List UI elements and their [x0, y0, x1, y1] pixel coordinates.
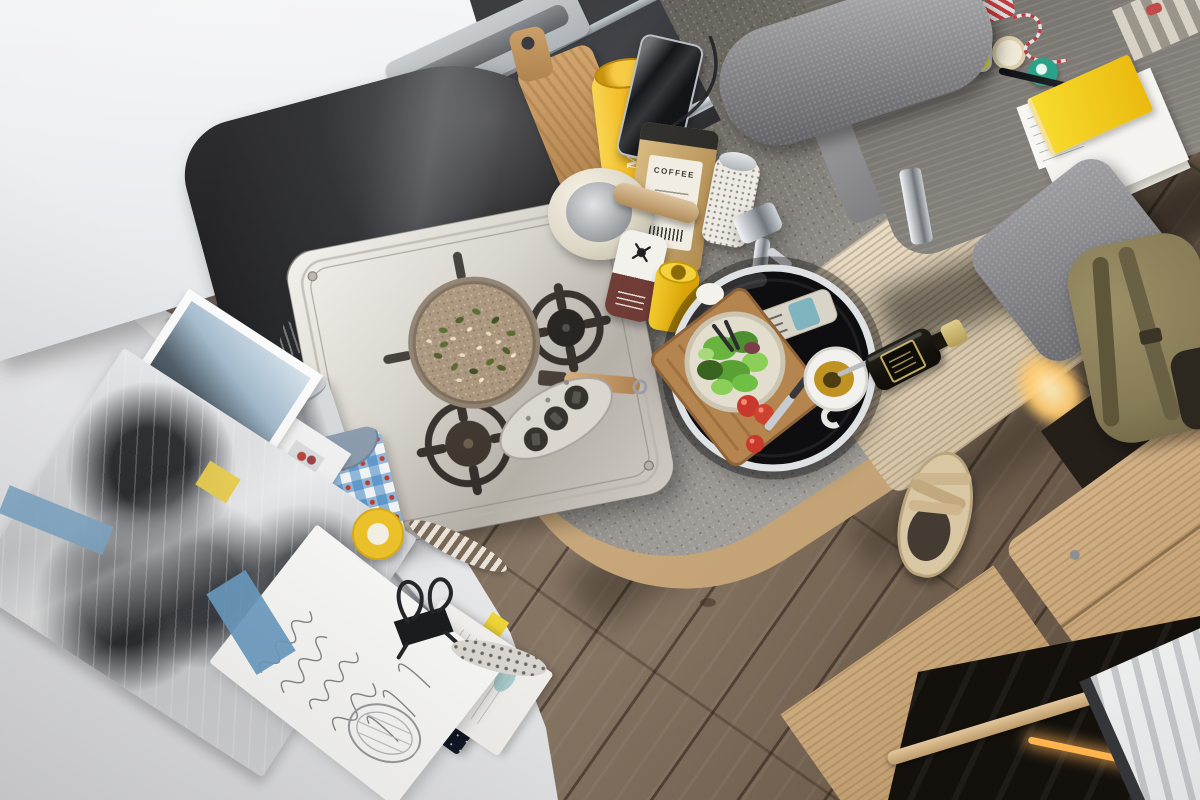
candle-lid [952, 17, 988, 36]
light-vignette [0, 0, 1200, 800]
counter-oak-edge [259, 0, 1101, 661]
hob-screws [305, 215, 655, 531]
olive-oil-bottle [862, 311, 974, 396]
backpack-dark-pocket [1168, 344, 1200, 432]
sandal-strap [910, 477, 968, 512]
can-label-text-lines [615, 288, 646, 310]
table-shadow [873, 140, 1200, 354]
smartphone [615, 32, 705, 167]
backpack-buckle [1139, 327, 1163, 345]
calligraphy-sheet [209, 524, 502, 800]
coffee-bag: COFFEE [622, 121, 719, 272]
muesli-tube: Muesli [590, 62, 677, 211]
pestle [611, 180, 702, 225]
oak-rail [886, 648, 1200, 767]
twine-string [1005, 6, 1095, 76]
dark-wedge [1041, 331, 1200, 528]
drawer-seam [1061, 473, 1200, 628]
mortar-bowl [548, 168, 652, 260]
lid-hinge [511, 357, 539, 375]
jug-with-oil [805, 348, 892, 426]
counter-floor-shadow [562, 343, 957, 631]
sandal-strap [913, 473, 971, 485]
photo-camper-kitchen: Muesli COFFEE [0, 0, 1200, 800]
salad-leaves [697, 331, 768, 395]
salad-bowl [687, 314, 783, 410]
blue-tape-2 [206, 570, 295, 675]
spray-can [603, 228, 670, 325]
coffee-bag-clip [640, 121, 720, 150]
led-strip-amber [1028, 736, 1200, 787]
calligraphy-strokes [226, 541, 483, 789]
coffee-label-lines [652, 186, 689, 216]
bench-floor-shadow [847, 338, 1143, 572]
dinette-table [787, 0, 1200, 265]
washi-spool [992, 36, 1026, 70]
yellow-tape [195, 461, 240, 504]
window-latch [468, 35, 498, 58]
backpack-strap [1092, 256, 1120, 427]
oil-bottle-cap [939, 318, 969, 349]
oak-drawer-unit [1003, 394, 1200, 717]
muesli-cap [593, 55, 660, 93]
counter-squiggle [657, 340, 683, 361]
white-desk [0, 0, 1200, 800]
postcard-highlight [410, 642, 443, 674]
striped-pillow [1112, 0, 1200, 61]
oil-bottle-body [862, 325, 944, 393]
candle-jar [948, 22, 992, 72]
hob-glass-lid [172, 32, 652, 483]
spice-shaker [700, 154, 762, 249]
gloss-panel [0, 0, 1200, 800]
window-chrome-bar2 [433, 0, 659, 112]
wood-floor [0, 0, 1200, 800]
bench-gap-shadow [742, 0, 939, 214]
paddle-cutting-board [515, 42, 638, 193]
window-chrome-bar [486, 96, 714, 219]
wall-sliver [621, 0, 898, 99]
metal-rod [167, 317, 471, 660]
cherry-tomatoes [737, 395, 774, 453]
jar-rim [657, 258, 700, 286]
desk-shadow-seam [0, 239, 356, 632]
lid-handle [382, 0, 592, 119]
twine-spool [978, 0, 1017, 24]
red-accent [1145, 2, 1163, 17]
sandal-sole [886, 444, 985, 585]
kitchen-counter [271, 0, 1089, 621]
floor-knot [700, 598, 716, 607]
mortar-steel-inner [566, 182, 632, 242]
bench-backrest-wood [609, 0, 1200, 277]
yellow-notebook [1026, 54, 1154, 156]
yellow-strip-card [419, 612, 509, 733]
power-socket [694, 16, 730, 52]
faucet [732, 200, 794, 306]
postcard-moon [347, 642, 375, 670]
binder-clip [366, 552, 474, 664]
color-photo [121, 289, 323, 481]
notebook-sheet-back [1047, 97, 1190, 218]
pan-seeds [421, 300, 524, 392]
drawer-screw [1140, 627, 1154, 641]
can-logo [632, 243, 651, 262]
bench-white-trim [645, 0, 1065, 105]
sandal-opening [902, 501, 956, 565]
feather-striped [404, 512, 512, 581]
feather-spotted [448, 633, 550, 684]
lid-etching [267, 258, 419, 358]
floor-knot [986, 640, 999, 648]
headrest-cushion [704, 0, 1007, 160]
board-hole [520, 35, 536, 51]
pot-holder-pocket [308, 423, 388, 481]
backpack-strap [1117, 245, 1182, 422]
gas-hob [282, 190, 679, 555]
blue-tape [0, 485, 114, 555]
postcard-white [386, 598, 554, 756]
cup-rim [247, 368, 330, 420]
shaker-lid [717, 149, 758, 174]
oil-bottle-label [879, 339, 927, 384]
phone-home-button [642, 142, 655, 155]
sandal [879, 442, 989, 584]
sink-area [640, 180, 920, 480]
checkered-pot-holder [262, 423, 410, 578]
knife [763, 375, 810, 432]
lid-hinge [401, 409, 429, 427]
washi-roll-desk [352, 508, 404, 560]
counter-oak-edge2 [259, 0, 1100, 659]
sketch-card [1016, 88, 1091, 169]
postcard-teal-smudge [489, 661, 521, 696]
notebook-sheet [1026, 68, 1189, 213]
cup-handle [242, 429, 301, 489]
charging-cable [590, 10, 770, 250]
bw-photo-in-plastic [0, 348, 417, 778]
seat-cushion-right [962, 149, 1188, 372]
coffee-label-text: COFFEE [647, 165, 702, 181]
white-overhead-lid [0, 0, 531, 362]
photo-under [191, 372, 352, 507]
metal-cup [250, 375, 355, 487]
postcard-dark [328, 581, 516, 756]
small-cutting-board [648, 285, 827, 468]
bench-side-wood [761, 134, 1139, 496]
oak-low-cabinet [780, 565, 1119, 800]
oak-socket-strip [651, 0, 849, 85]
white-door [1079, 616, 1200, 800]
pan-handle [538, 369, 647, 395]
table-leg-chrome [899, 167, 934, 246]
food-packet [752, 287, 839, 346]
frying-pan-with-seeds [397, 265, 552, 420]
oil-bottle-highlight [867, 332, 922, 363]
green-tape-roll [1028, 58, 1058, 86]
seat-led-glow [979, 315, 1122, 465]
mustard-jar [647, 265, 700, 335]
photo-under-red-detail [284, 440, 324, 477]
sandal-strap [908, 499, 963, 516]
oil-bottle-neck [930, 330, 950, 351]
pen [998, 67, 1078, 92]
board-handle [507, 25, 555, 84]
lid-handle-slot [403, 2, 572, 96]
muesli-label: Muesli [623, 93, 643, 189]
coffee-barcode [648, 225, 683, 242]
floor-knot [760, 478, 771, 485]
window [389, 0, 721, 234]
coffee-label: COFFEE [637, 155, 703, 252]
color-photo-image [133, 301, 310, 468]
drawer-screw [1068, 548, 1082, 562]
bench-seat-grey [810, 76, 972, 227]
backpack [1061, 226, 1200, 450]
